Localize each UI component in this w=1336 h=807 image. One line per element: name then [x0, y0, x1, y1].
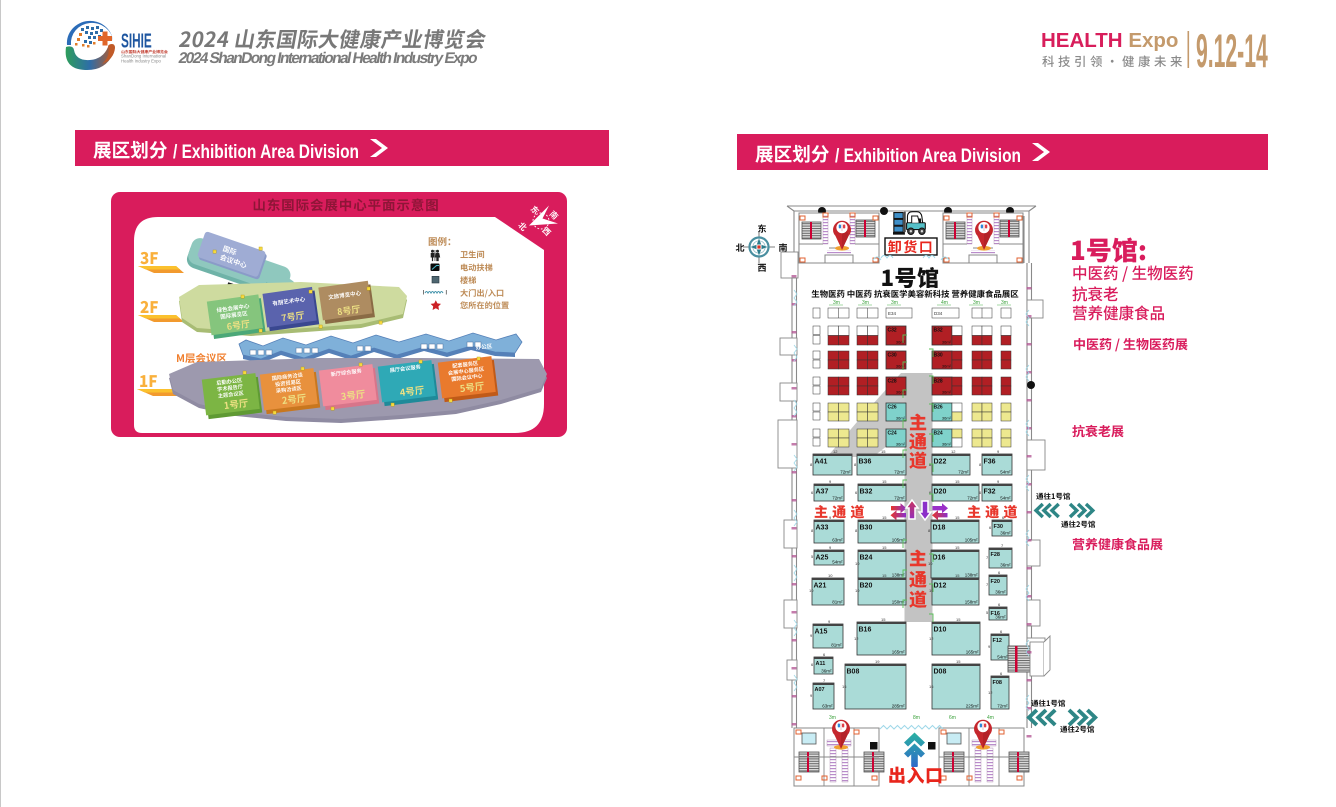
- svg-text:36m²: 36m²: [995, 590, 1006, 595]
- svg-text:16: 16: [929, 684, 934, 689]
- svg-text:D10: D10: [934, 627, 947, 634]
- svg-text:A21: A21: [814, 583, 827, 590]
- svg-text:15: 15: [955, 573, 960, 578]
- svg-text:B32: B32: [934, 328, 943, 334]
- svg-text:6: 6: [823, 652, 826, 657]
- svg-text:36m²: 36m²: [942, 416, 952, 421]
- svg-text:36m²: 36m²: [942, 442, 952, 447]
- svg-text:F20: F20: [991, 579, 1000, 585]
- svg-text:63m²: 63m²: [822, 704, 833, 709]
- svg-text:9: 9: [829, 515, 832, 520]
- svg-text:6: 6: [1000, 671, 1003, 676]
- svg-text:A15: A15: [815, 629, 828, 636]
- svg-text:Health Industry Expo: Health Industry Expo: [121, 58, 161, 63]
- svg-text:10: 10: [855, 561, 860, 566]
- svg-text:165m²: 165m²: [966, 650, 979, 655]
- svg-text:63m²: 63m²: [832, 538, 843, 543]
- svg-text:7: 7: [986, 582, 989, 587]
- svg-text:F36: F36: [984, 459, 996, 466]
- svg-text:A25: A25: [816, 555, 829, 562]
- svg-text:B36: B36: [859, 459, 872, 466]
- svg-text:138m²: 138m²: [965, 573, 978, 578]
- svg-text:6: 6: [998, 602, 1001, 607]
- svg-text:F08: F08: [993, 680, 1002, 686]
- svg-text:15: 15: [882, 515, 887, 520]
- svg-text:15: 15: [956, 617, 961, 622]
- svg-text:8: 8: [854, 462, 857, 467]
- svg-text:36m²: 36m²: [896, 442, 906, 447]
- svg-text:72m²: 72m²: [997, 704, 1008, 709]
- svg-text:9: 9: [829, 479, 832, 484]
- svg-text:A37: A37: [816, 489, 829, 496]
- svg-text:7: 7: [1001, 543, 1004, 548]
- svg-text:6: 6: [979, 490, 982, 495]
- svg-text:15: 15: [882, 479, 887, 484]
- svg-text:12: 12: [988, 690, 993, 695]
- svg-text:7: 7: [986, 555, 989, 560]
- svg-text:9.12-14: 9.12-14: [1196, 24, 1268, 77]
- svg-text:72m²: 72m²: [840, 470, 851, 475]
- svg-text:9: 9: [810, 633, 813, 638]
- svg-text:72m²: 72m²: [832, 496, 843, 501]
- svg-text:6m: 6m: [949, 715, 956, 721]
- svg-text:B30: B30: [934, 353, 943, 359]
- svg-text:F30: F30: [994, 524, 1003, 530]
- svg-text:15: 15: [955, 479, 960, 484]
- svg-text:F32: F32: [984, 489, 996, 496]
- svg-text:36m²: 36m²: [1000, 531, 1011, 536]
- svg-text:9: 9: [988, 644, 991, 649]
- svg-text:D12: D12: [934, 583, 947, 590]
- svg-text:9: 9: [997, 449, 1000, 454]
- svg-text:A41: A41: [815, 459, 828, 466]
- svg-text:15: 15: [956, 659, 961, 664]
- svg-text:16: 16: [842, 684, 847, 689]
- svg-text:158m²: 158m²: [965, 600, 978, 605]
- svg-text:19: 19: [875, 659, 880, 664]
- svg-text:36m²: 36m²: [995, 615, 1006, 620]
- svg-text:9: 9: [810, 693, 813, 698]
- svg-text:36m²: 36m²: [821, 669, 832, 674]
- svg-text:B26: B26: [934, 405, 943, 411]
- svg-text:D22: D22: [934, 459, 947, 466]
- svg-text:10: 10: [928, 561, 933, 566]
- svg-text:5: 5: [986, 610, 989, 615]
- svg-text:B30: B30: [860, 525, 873, 532]
- svg-text:165m²: 165m²: [892, 650, 905, 655]
- svg-text:/ Exhibition Area Division: / Exhibition Area Division: [173, 141, 359, 163]
- svg-text:15: 15: [881, 617, 886, 622]
- svg-text:6: 6: [998, 570, 1001, 575]
- svg-text:2024 ShanDong International He: 2024 ShanDong International Health Indus…: [177, 50, 479, 67]
- svg-text:6: 6: [811, 490, 814, 495]
- svg-text:B20: B20: [860, 583, 873, 590]
- svg-text:4m: 4m: [987, 715, 994, 721]
- svg-text:9: 9: [828, 619, 831, 624]
- svg-text:72m²: 72m²: [958, 470, 969, 475]
- svg-text:A11: A11: [816, 661, 826, 667]
- svg-text:36m²: 36m²: [896, 364, 906, 369]
- svg-text:72m²: 72m²: [894, 470, 905, 475]
- svg-text:15: 15: [955, 545, 960, 550]
- svg-text:12: 12: [951, 449, 956, 454]
- svg-text:7: 7: [823, 678, 826, 683]
- svg-text:54m²: 54m²: [832, 560, 843, 565]
- svg-text:8m: 8m: [913, 715, 920, 721]
- svg-text:225m²: 225m²: [966, 704, 979, 709]
- svg-text:72m²: 72m²: [967, 496, 978, 501]
- svg-text:D20: D20: [934, 489, 947, 496]
- svg-text:6: 6: [855, 490, 858, 495]
- svg-text:E34: E34: [888, 311, 897, 316]
- svg-text:B24: B24: [934, 431, 943, 437]
- svg-text:F12: F12: [993, 638, 1002, 644]
- svg-text:15: 15: [955, 515, 960, 520]
- svg-text:15: 15: [881, 449, 886, 454]
- svg-text:8: 8: [810, 462, 813, 467]
- svg-text:8: 8: [855, 528, 858, 533]
- svg-text:B32: B32: [860, 489, 873, 496]
- svg-text:54m²: 54m²: [997, 655, 1008, 660]
- svg-text:10: 10: [828, 573, 833, 578]
- svg-text:81m²: 81m²: [832, 600, 843, 605]
- svg-text:36m²: 36m²: [942, 340, 952, 345]
- svg-text:F28: F28: [991, 552, 1000, 558]
- svg-text:6: 6: [811, 662, 814, 667]
- svg-text:C28: C28: [888, 379, 897, 385]
- svg-text:5: 5: [811, 554, 814, 559]
- svg-text:81m²: 81m²: [831, 643, 842, 648]
- svg-text:36m²: 36m²: [1000, 563, 1011, 568]
- svg-text:15: 15: [882, 545, 887, 550]
- svg-text:54m²: 54m²: [1000, 470, 1011, 475]
- svg-text:C26: C26: [888, 405, 897, 411]
- svg-text:9: 9: [829, 545, 832, 550]
- svg-text:D34: D34: [934, 311, 943, 316]
- svg-text:12: 12: [833, 449, 838, 454]
- svg-text:8: 8: [811, 528, 814, 533]
- svg-text:B28: B28: [934, 379, 943, 385]
- svg-text:3m: 3m: [829, 715, 836, 721]
- svg-text:54m²: 54m²: [1000, 496, 1011, 501]
- svg-text:36m²: 36m²: [942, 364, 952, 369]
- svg-text:SIHIE: SIHIE: [121, 29, 152, 52]
- svg-text:6: 6: [1000, 629, 1003, 634]
- svg-text:C30: C30: [888, 353, 897, 359]
- svg-text:36m²: 36m²: [896, 340, 906, 345]
- svg-text:285m²: 285m²: [892, 704, 905, 709]
- svg-text:36m²: 36m²: [942, 390, 952, 395]
- svg-text:C24: C24: [888, 431, 897, 437]
- svg-text:12: 12: [929, 636, 934, 641]
- svg-text:10: 10: [809, 588, 814, 593]
- svg-text:8: 8: [979, 462, 982, 467]
- svg-text:15: 15: [882, 573, 887, 578]
- svg-text:HEALTH Expo: HEALTH Expo: [1041, 29, 1178, 52]
- svg-text:A33: A33: [816, 525, 829, 532]
- svg-text:10: 10: [855, 588, 860, 593]
- svg-text:C32: C32: [888, 328, 897, 334]
- svg-text:D08: D08: [934, 669, 947, 676]
- svg-text:9: 9: [997, 479, 1000, 484]
- svg-text:B08: B08: [847, 669, 860, 676]
- svg-text:/ Exhibition Area Division: / Exhibition Area Division: [835, 145, 1021, 167]
- svg-text:6: 6: [989, 525, 992, 530]
- svg-text:B24: B24: [860, 555, 873, 562]
- svg-text:105m²: 105m²: [965, 538, 978, 543]
- svg-text:D18: D18: [933, 525, 946, 532]
- svg-text:B16: B16: [859, 627, 872, 634]
- svg-text:A07: A07: [815, 687, 825, 693]
- svg-text:D16: D16: [933, 555, 946, 562]
- svg-text:12: 12: [854, 636, 859, 641]
- svg-text:72m²: 72m²: [894, 496, 905, 501]
